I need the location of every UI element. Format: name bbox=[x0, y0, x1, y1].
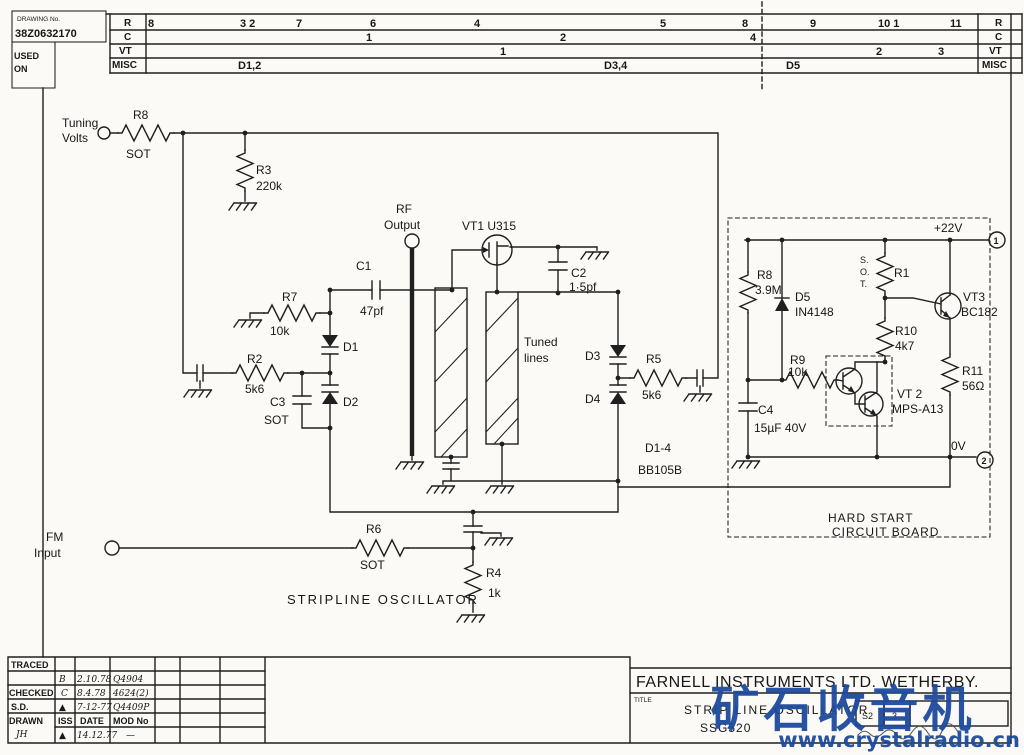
label-r9-value: 10k bbox=[788, 365, 808, 379]
rev-row-c-entries: 1 2 4 bbox=[366, 32, 757, 44]
rev-row-rlabel-vt: VT bbox=[989, 46, 1002, 57]
rev-entry: 1 bbox=[500, 46, 506, 58]
used-on-label-2: ON bbox=[14, 64, 28, 74]
label-rf-2: Output bbox=[384, 218, 421, 232]
tb-sd: S.D. bbox=[11, 702, 29, 712]
label-tuning-1: Tuning bbox=[62, 116, 98, 130]
ground-vt1-drain bbox=[581, 252, 609, 259]
label-0v: 0V bbox=[951, 439, 966, 453]
rev-entry: D5 bbox=[786, 60, 800, 72]
tb-row2-mod: 4624(2) bbox=[112, 688, 149, 699]
terminal-2-number: 2 bbox=[982, 456, 987, 466]
tb-checked: CHECKED bbox=[9, 688, 54, 698]
feedthrough-cap-right bbox=[697, 370, 703, 392]
tb-row4-iss: ▲ bbox=[59, 731, 66, 741]
drawing-no-value: 38Z0632170 bbox=[15, 28, 77, 40]
transistor-vt3 bbox=[935, 293, 961, 319]
label-r4-value: 1k bbox=[488, 586, 502, 600]
tb-row4-date: 14.12.77 bbox=[77, 731, 117, 741]
label-r8a: R8 bbox=[133, 108, 149, 122]
feedthrough-cap-fm bbox=[464, 526, 482, 532]
capacitor-c2 bbox=[549, 262, 567, 270]
rev-entry: 4 bbox=[750, 32, 757, 44]
ground-r5-feedthrough bbox=[684, 394, 712, 401]
label-r1: R1 bbox=[894, 266, 910, 280]
tb-row3-date: 7-12-77 bbox=[77, 703, 112, 713]
label-d1: D1 bbox=[343, 340, 359, 354]
revision-strip: R C VT MISC R C VT MISC 8 3 2 7 6 4 5 8 … bbox=[106, 2, 1022, 92]
ground-c4 bbox=[732, 461, 760, 468]
rev-row-label-vt: VT bbox=[119, 46, 132, 57]
tb-iss-header: ISS bbox=[58, 716, 73, 726]
tb-row2-iss: C bbox=[61, 689, 68, 699]
ground-line2 bbox=[486, 486, 514, 493]
label-c1-value: 47pf bbox=[360, 304, 384, 318]
capacitor-c1 bbox=[372, 281, 380, 299]
label-c2: C2 bbox=[571, 266, 587, 280]
label-d3: D3 bbox=[585, 349, 601, 363]
label-d2: D2 bbox=[343, 395, 359, 409]
label-r8b-value: 3.9M bbox=[755, 283, 782, 297]
label-vt1: VT1 U315 bbox=[462, 219, 516, 233]
label-hard-start-1: HARD START bbox=[828, 511, 914, 525]
resistor-r8-sot bbox=[118, 125, 174, 141]
drawing-number-box: DRAWING No. 38Z0632170 USED ON bbox=[12, 11, 106, 88]
rev-row-rlabel-c: C bbox=[995, 32, 1002, 43]
ground-fm-feedthrough bbox=[485, 538, 513, 545]
rev-entry: 2 bbox=[560, 32, 566, 44]
label-r4: R4 bbox=[486, 566, 502, 580]
transistor-vt1 bbox=[482, 235, 512, 265]
rev-entry: 9 bbox=[810, 18, 816, 30]
label-hard-start-2: CIRCUIT BOARD bbox=[832, 525, 939, 539]
label-r8a-value: SOT bbox=[126, 147, 151, 161]
tb-row1-iss: B bbox=[58, 675, 66, 685]
rev-entry: 8 bbox=[742, 18, 748, 30]
ground-left-feedthrough bbox=[184, 390, 212, 397]
label-tuned-2: lines bbox=[524, 351, 549, 365]
label-r7: R7 bbox=[282, 290, 298, 304]
ground-r4 bbox=[457, 615, 485, 622]
label-r6-value: SOT bbox=[360, 558, 385, 572]
label-fm-2: Input bbox=[34, 546, 61, 560]
ground-rf-probe bbox=[396, 462, 424, 469]
rf-probe-line bbox=[410, 248, 414, 456]
fm-input-terminal bbox=[105, 541, 119, 555]
label-fm-1: FM bbox=[46, 530, 63, 544]
watermark: 矿石收音机 www.crystalradio.cn bbox=[666, 684, 1020, 750]
rev-entry: 1 bbox=[366, 32, 372, 44]
sheet-borders bbox=[43, 14, 1011, 743]
rev-entry: 6 bbox=[370, 18, 376, 30]
label-r10: R10 bbox=[895, 324, 917, 338]
label-d5: D5 bbox=[795, 290, 811, 304]
label-c3-value: SOT bbox=[264, 413, 289, 427]
rev-entry: 10 1 bbox=[878, 18, 899, 30]
resistor-r10 bbox=[877, 318, 893, 359]
rev-row-label-c: C bbox=[124, 32, 131, 43]
rev-row-rlabel-r: R bbox=[995, 18, 1003, 29]
label-d1-4: D1-4 bbox=[645, 441, 671, 455]
label-c1: C1 bbox=[356, 259, 372, 273]
capacitor-c4 bbox=[739, 403, 757, 411]
rev-row-label-misc: MISC bbox=[112, 60, 137, 71]
resistor-r1 bbox=[877, 253, 893, 294]
label-r11-value: 56Ω bbox=[962, 379, 984, 393]
label-sot-t: T. bbox=[860, 279, 867, 289]
resistor-r7 bbox=[264, 305, 320, 321]
label-c4: C4 bbox=[758, 403, 774, 417]
resistor-r11 bbox=[942, 354, 958, 395]
resistor-r3 bbox=[237, 150, 253, 191]
varicap-d1 bbox=[322, 335, 338, 354]
rev-entry: 2 bbox=[876, 46, 882, 58]
label-r10-value: 4k7 bbox=[895, 339, 915, 353]
label-tuned-1: Tuned bbox=[524, 335, 558, 349]
tb-date-header: DATE bbox=[80, 716, 104, 726]
label-d5-value: IN4148 bbox=[795, 305, 834, 319]
label-r2: R2 bbox=[247, 352, 263, 366]
label-sot-s: S. bbox=[860, 255, 869, 265]
resistor-r6 bbox=[352, 540, 408, 556]
label-r5: R5 bbox=[646, 352, 662, 366]
rev-row-label-r: R bbox=[124, 18, 132, 29]
tb-row3-iss: ▲ bbox=[59, 703, 66, 713]
tb-row4-mod: — bbox=[126, 731, 135, 741]
rev-entry: 7 bbox=[296, 18, 302, 30]
tb-title-label: TITLE bbox=[634, 697, 652, 704]
varicap-d3 bbox=[610, 345, 626, 364]
ground-line1 bbox=[427, 486, 455, 493]
rf-output-terminal bbox=[405, 234, 419, 248]
ground-r7 bbox=[234, 320, 262, 327]
oscillator-circuit: Tuning Volts R8 SOT R3 220k RF Output C1… bbox=[34, 108, 718, 622]
tuned-line-2 bbox=[486, 292, 518, 444]
label-d4: D4 bbox=[585, 392, 601, 406]
label-d1-4-value: BB105B bbox=[638, 463, 682, 477]
label-r6: R6 bbox=[366, 522, 382, 536]
label-c3: C3 bbox=[270, 395, 286, 409]
label-vt3: VT3 bbox=[963, 290, 985, 304]
label-c2-value: 1·5pf bbox=[569, 280, 597, 294]
varicap-d2 bbox=[322, 385, 338, 404]
resistor-r5 bbox=[630, 370, 686, 386]
tuning-volts-terminal bbox=[98, 127, 110, 139]
rev-entry: 11 bbox=[950, 18, 962, 30]
drawing-no-label: DRAWING No. bbox=[17, 16, 60, 23]
rev-row-r-entries: 8 3 2 7 6 4 5 8 9 10 1 11 bbox=[148, 18, 962, 30]
ground-r3 bbox=[229, 203, 257, 210]
label-r8b: R8 bbox=[757, 268, 773, 282]
rev-row-rlabel-misc: MISC bbox=[982, 60, 1007, 71]
rev-entry: 5 bbox=[660, 18, 666, 30]
tb-drawn-initials: JH bbox=[14, 730, 28, 740]
label-r11: R11 bbox=[962, 364, 983, 378]
tuned-line-1 bbox=[435, 288, 467, 457]
tb-row1-date: 2.10.78 bbox=[76, 675, 112, 685]
diode-d5 bbox=[775, 298, 789, 311]
label-r7-value: 10k bbox=[270, 324, 290, 338]
rev-entry: D3,4 bbox=[604, 60, 628, 72]
label-tuning-2: Volts bbox=[62, 131, 88, 145]
transistor-q2 bbox=[859, 362, 883, 457]
label-r2-value: 5k6 bbox=[245, 382, 265, 396]
tb-mod-header: MOD No bbox=[113, 716, 149, 726]
rev-row-vt-entries: 1 2 3 bbox=[500, 46, 944, 58]
rev-entry: 3 bbox=[938, 46, 944, 58]
terminal-1-number: 1 bbox=[994, 236, 999, 246]
rev-entry: 4 bbox=[474, 18, 481, 30]
darlington-outline bbox=[826, 356, 892, 426]
rev-entry: 3 2 bbox=[240, 18, 255, 30]
tb-row2-date: 8.4.78 bbox=[77, 689, 106, 699]
rev-row-misc-entries: D1,2 D3,4 D5 bbox=[238, 60, 800, 72]
tb-row1-mod: Q4904 bbox=[113, 675, 144, 685]
varicap-d4 bbox=[610, 385, 626, 404]
label-r3: R3 bbox=[256, 163, 272, 177]
feedthrough-cap-left bbox=[197, 365, 203, 388]
label-plus22v: +22V bbox=[934, 221, 962, 235]
rev-entry: D1,2 bbox=[238, 60, 261, 72]
label-rf-1: RF bbox=[396, 202, 412, 216]
capacitor-c3 bbox=[293, 396, 311, 404]
used-on-label-1: USED bbox=[14, 51, 40, 61]
rev-entry: 8 bbox=[148, 18, 154, 30]
label-vt2: VT 2 bbox=[897, 387, 922, 401]
tb-drawn: DRAWN bbox=[9, 716, 43, 726]
label-vt2-value: MPS-A13 bbox=[892, 402, 944, 416]
schematic-sheet: DRAWING No. 38Z0632170 USED ON R C VT MI… bbox=[0, 0, 1024, 755]
label-c4-value: 15µF 40V bbox=[754, 421, 806, 435]
label-r5-value: 5k6 bbox=[642, 388, 662, 402]
hard-start-board: +22V 1 0V 2 R8 3.9M D5 IN4148 S. O. T. R… bbox=[618, 218, 1005, 539]
label-sot-o: O. bbox=[860, 267, 870, 277]
resistor-r2 bbox=[232, 365, 288, 381]
label-vt3-value: BC182 bbox=[961, 305, 998, 319]
resistor-r8b bbox=[740, 272, 756, 313]
schematic-canvas: DRAWING No. 38Z0632170 USED ON R C VT MI… bbox=[0, 0, 1024, 755]
tb-traced: TRACED bbox=[11, 660, 49, 670]
label-stripline-oscillator: STRIPLINE OSCILLATOR bbox=[287, 592, 479, 607]
label-r3-value: 220k bbox=[256, 179, 283, 193]
tb-row3-mod: Q4409P bbox=[113, 703, 150, 713]
feedthrough-cap-line1 bbox=[443, 463, 459, 469]
